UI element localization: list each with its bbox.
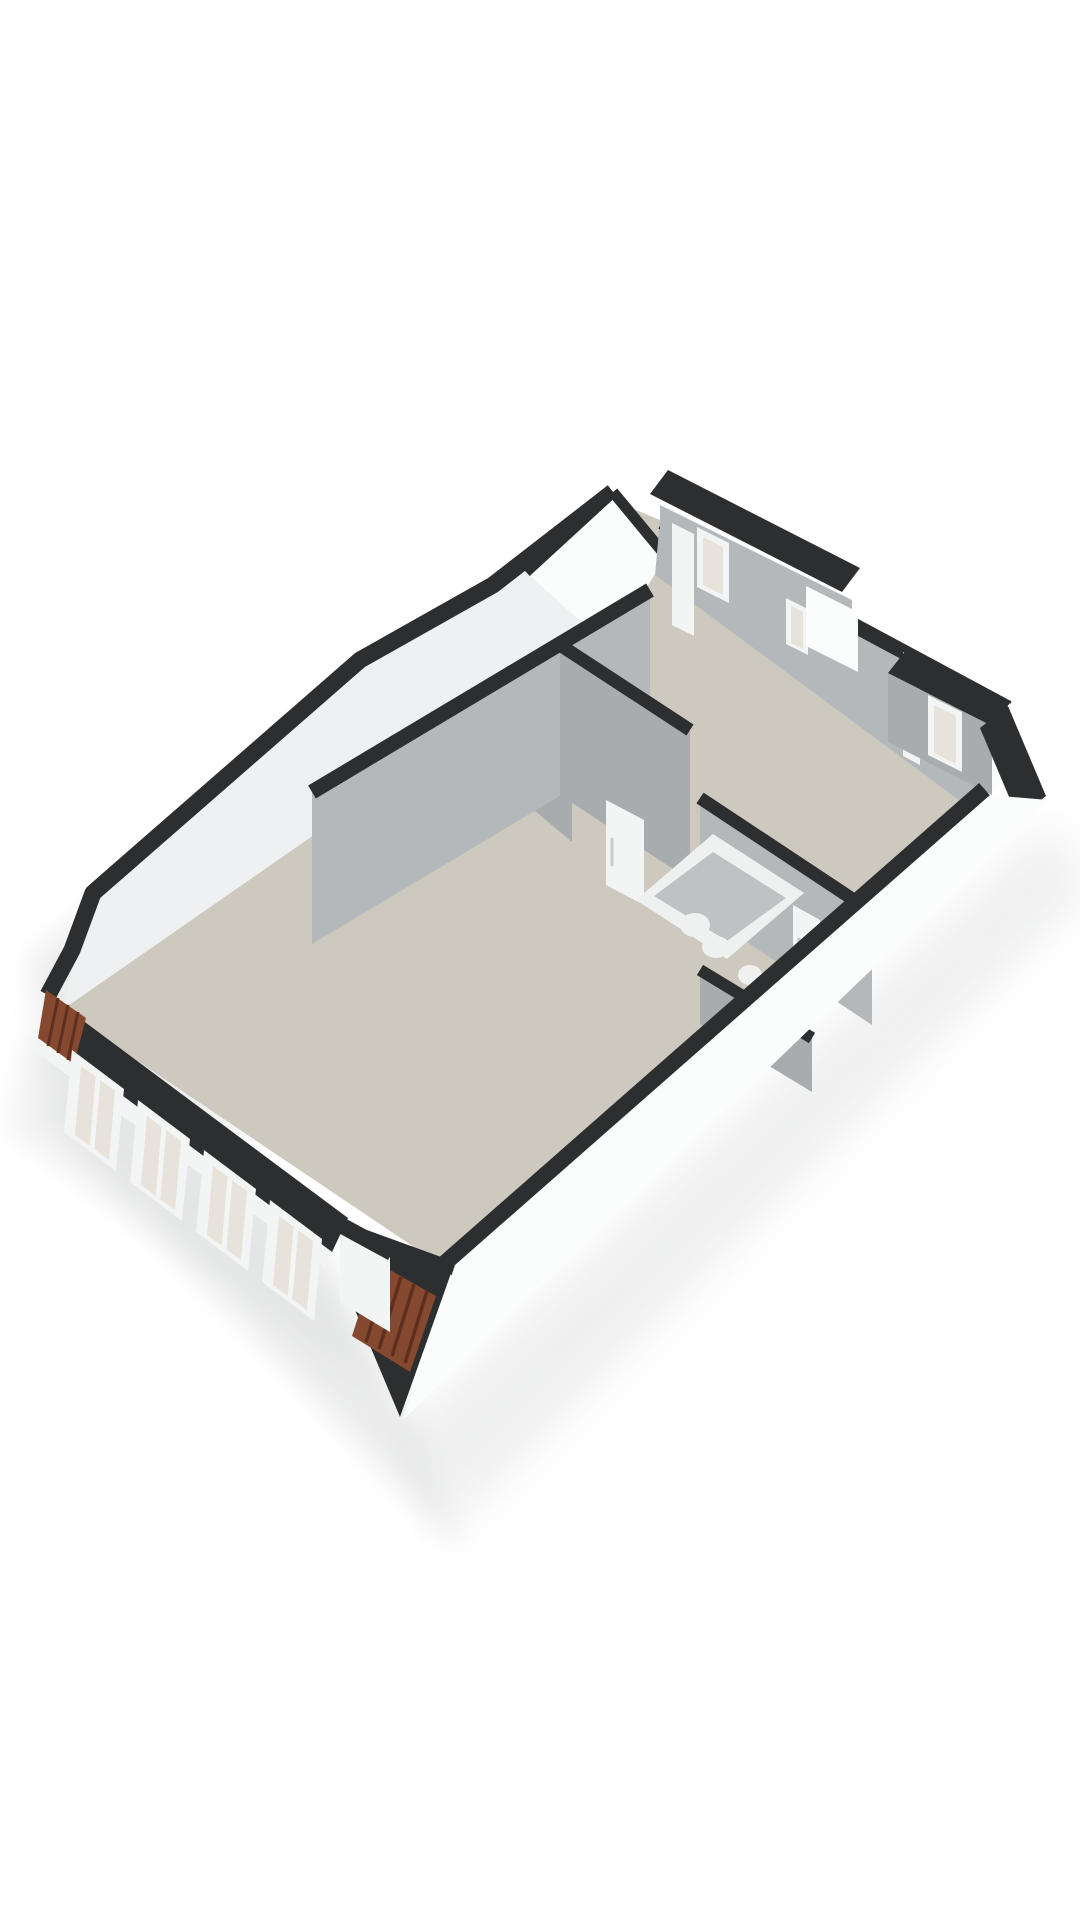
floorplan-page <box>0 0 1080 1920</box>
dormer-top-window-2-glass <box>791 606 803 649</box>
duct-pillar <box>672 523 694 636</box>
floorplan-3d-render <box>0 0 1080 1920</box>
dormer-top-window-1-glass <box>703 537 723 595</box>
fixture-sink <box>680 913 710 937</box>
fixture-toilet <box>702 936 730 958</box>
